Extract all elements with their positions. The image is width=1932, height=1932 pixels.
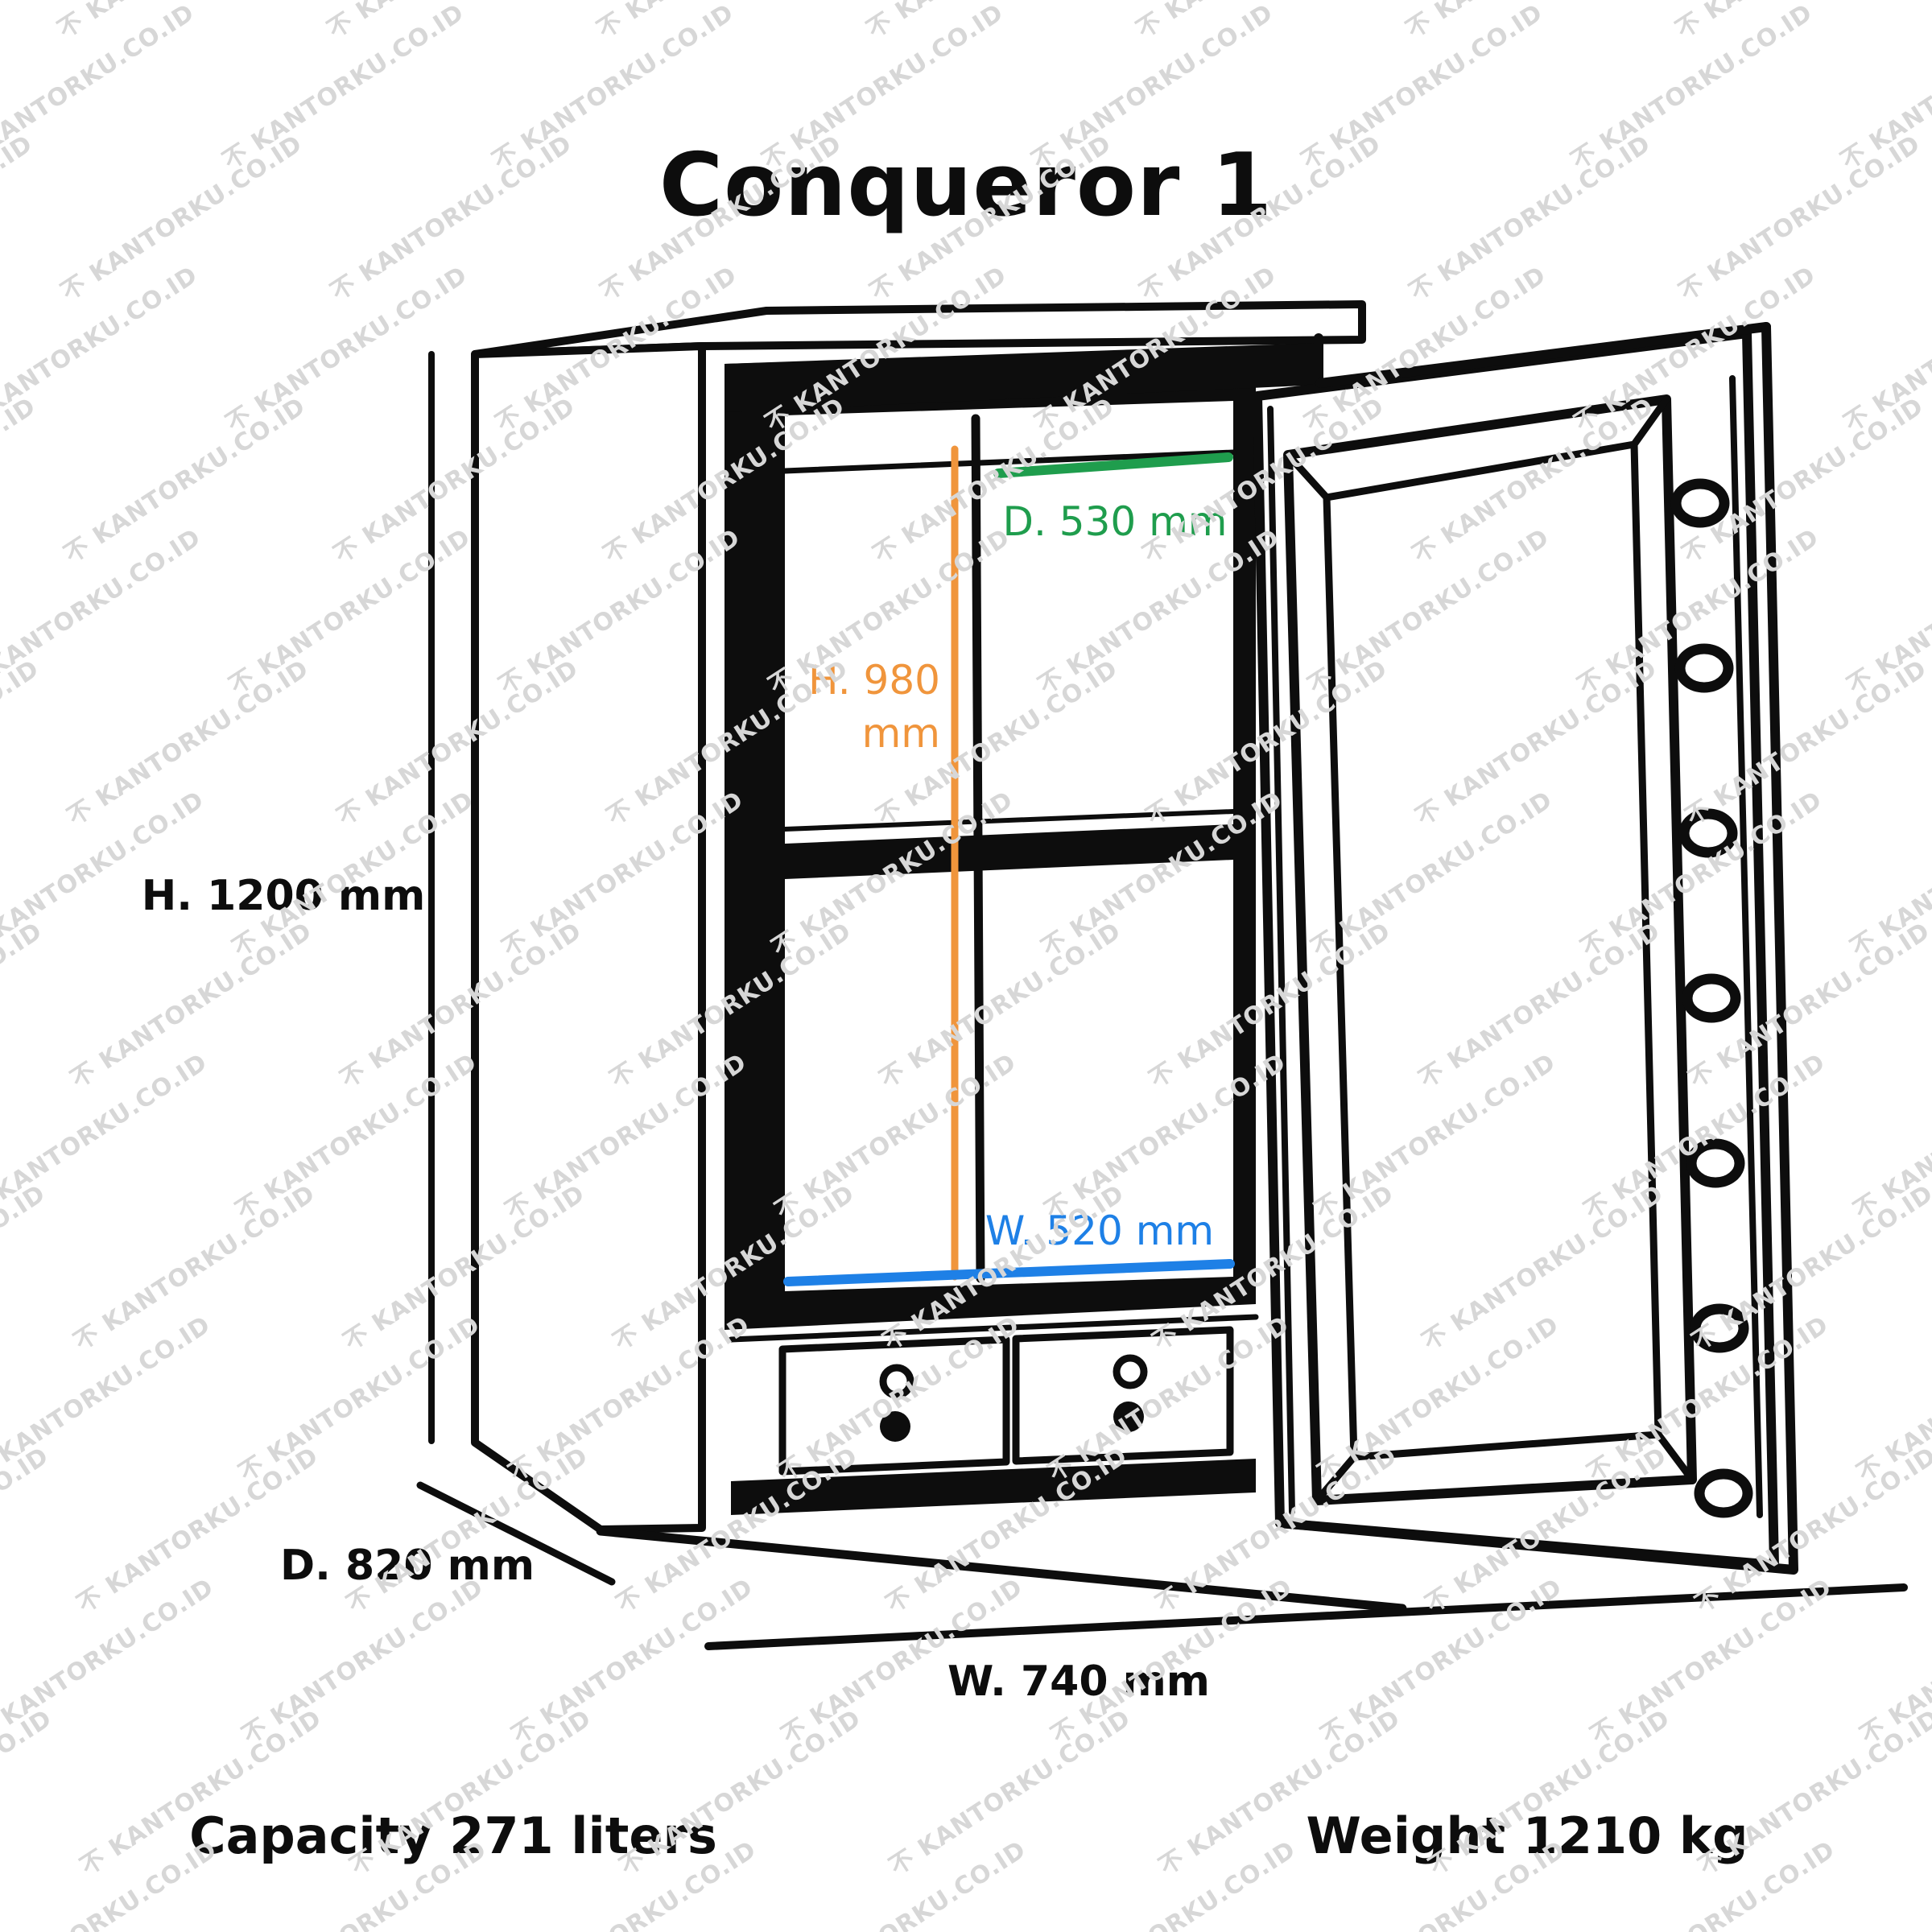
drawer-right-knob-icon bbox=[1113, 1402, 1144, 1432]
capacity-text: Capacity 271 liters bbox=[131, 1806, 775, 1865]
door-bolt-icon bbox=[1695, 1309, 1744, 1348]
dimension-label-height: H. 1200 mm bbox=[142, 872, 426, 920]
drawer-right-keyhole-ring-icon bbox=[1117, 1358, 1144, 1385]
dimension-label-depth: D. 820 mm bbox=[280, 1542, 535, 1590]
drawer-left bbox=[782, 1340, 1006, 1472]
middle-shelf bbox=[785, 824, 1233, 879]
door-bolt-icon bbox=[1699, 1474, 1748, 1513]
safe-diagram: D. 530 mm H. 980 mm W. 520 mm H. 1200 mm… bbox=[0, 0, 1932, 1932]
base-bottom-edge bbox=[601, 1531, 1402, 1608]
drawer-left-knob-icon bbox=[880, 1411, 910, 1442]
diagram-canvas: D. 530 mm H. 980 mm W. 520 mm H. 1200 mm… bbox=[0, 0, 1932, 1932]
door-bolt-icon bbox=[1684, 814, 1732, 852]
shelf-upper-line bbox=[785, 811, 1233, 829]
door-bolt-icon bbox=[1687, 979, 1736, 1018]
dimension-label-internal-height-line2: mm bbox=[862, 710, 940, 757]
door-bolt-icon bbox=[1676, 484, 1724, 522]
dimension-label-width: W. 740 mm bbox=[947, 1657, 1210, 1706]
dimension-label-internal-height-line1: H. 980 bbox=[808, 657, 940, 704]
safe-side-face bbox=[475, 346, 702, 1529]
drawer-left-keyhole-ring-icon bbox=[883, 1368, 910, 1395]
dimension-label-internal-width: W. 520 mm bbox=[985, 1207, 1214, 1254]
weight-text: Weight 1210 kg bbox=[1205, 1806, 1849, 1865]
page-title: Conqueror 1 bbox=[0, 135, 1932, 236]
dimension-line-internal-width bbox=[788, 1264, 1230, 1282]
dimension-label-internal-depth: D. 530 mm bbox=[1002, 498, 1227, 545]
door-bolt-icon bbox=[1680, 649, 1728, 687]
door-bolt-icon bbox=[1691, 1144, 1740, 1183]
drawer-right bbox=[1016, 1330, 1230, 1461]
